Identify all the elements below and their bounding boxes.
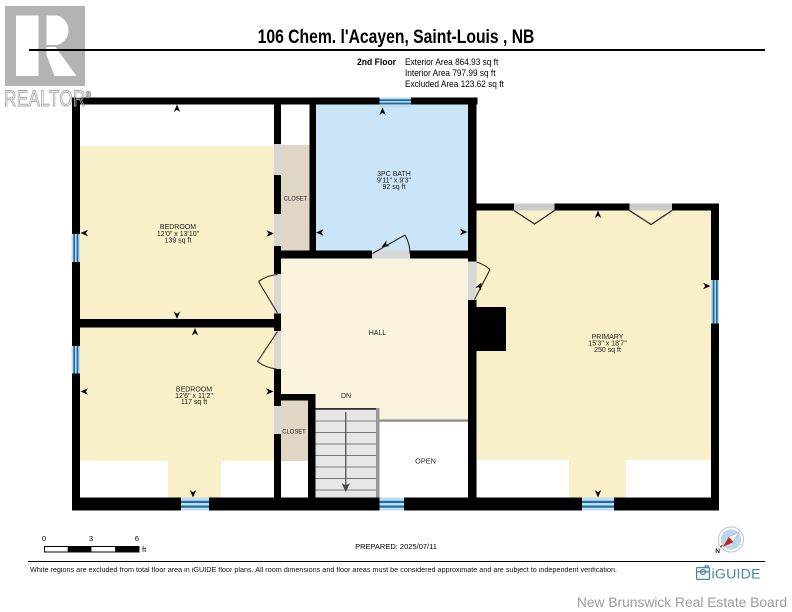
svg-text:CLOSET: CLOSET [282,428,306,435]
svg-text:iGUIDE: iGUIDE [712,567,761,583]
svg-text:250 sq ft: 250 sq ft [594,347,621,354]
svg-text:117 sq ft: 117 sq ft [181,399,207,406]
svg-text:N: N [715,548,720,555]
svg-text:DN: DN [341,393,351,400]
svg-text:CLOSET: CLOSET [284,195,308,202]
svg-text:92 sq ft: 92 sq ft [383,184,406,191]
svg-text:139 sq ft: 139 sq ft [165,237,192,244]
svg-text:BEDROOM: BEDROOM [160,224,196,231]
svg-text:HALL: HALL [369,330,387,337]
svg-text:OPEN: OPEN [415,457,436,466]
